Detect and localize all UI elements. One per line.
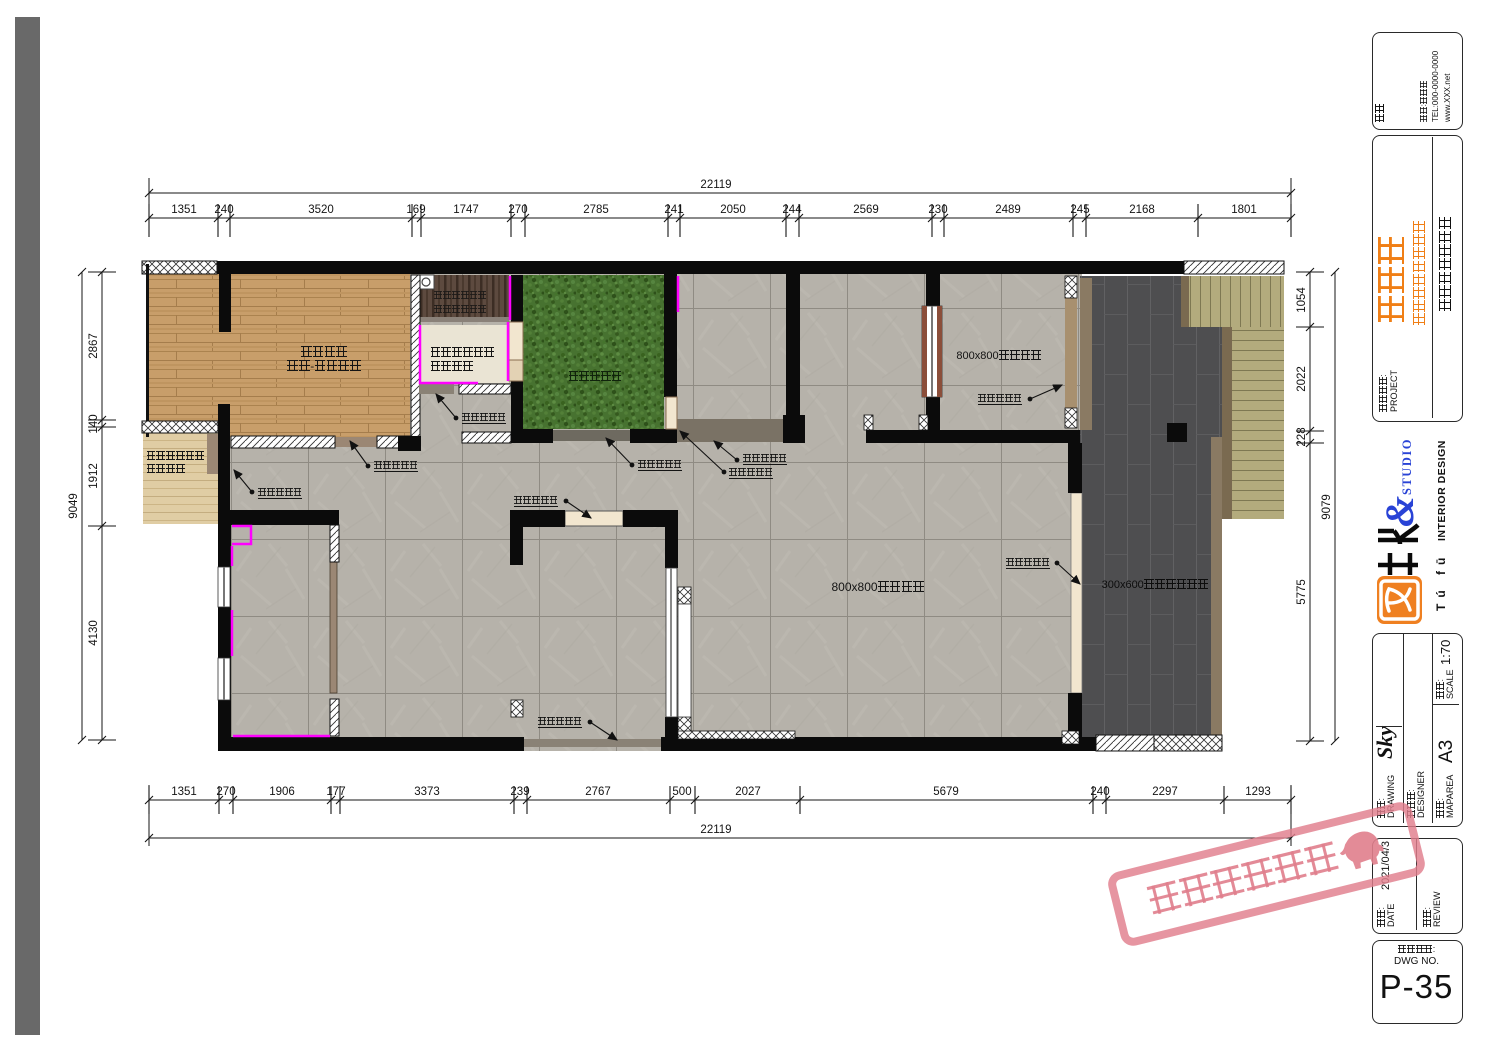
- svg-text:2168: 2168: [1129, 204, 1155, 216]
- svg-text:140: 140: [88, 414, 100, 433]
- svg-text:2785: 2785: [583, 204, 609, 216]
- svg-text:1906: 1906: [269, 786, 295, 798]
- svg-text:245: 245: [1070, 204, 1089, 216]
- svg-text:3373: 3373: [414, 786, 440, 798]
- svg-text:230: 230: [928, 204, 947, 216]
- svg-text:1054: 1054: [1296, 287, 1308, 313]
- svg-text:9079: 9079: [1321, 494, 1333, 520]
- svg-text:169: 169: [406, 204, 425, 216]
- svg-text:244: 244: [782, 204, 802, 216]
- svg-text:241: 241: [664, 204, 683, 216]
- svg-text:1912: 1912: [88, 463, 100, 489]
- svg-text:270: 270: [508, 204, 527, 216]
- svg-text:2489: 2489: [995, 204, 1021, 216]
- svg-text:177: 177: [326, 786, 345, 798]
- svg-text:5679: 5679: [933, 786, 959, 798]
- svg-text:500: 500: [672, 786, 691, 798]
- svg-text:1747: 1747: [453, 204, 479, 216]
- svg-text:1293: 1293: [1245, 786, 1271, 798]
- svg-text:2297: 2297: [1152, 786, 1178, 798]
- svg-text:2022: 2022: [1296, 366, 1308, 392]
- svg-text:5775: 5775: [1296, 579, 1308, 605]
- svg-text:228: 228: [1296, 427, 1308, 446]
- svg-text:3520: 3520: [308, 204, 334, 216]
- svg-text:2569: 2569: [853, 204, 879, 216]
- svg-text:2050: 2050: [720, 204, 746, 216]
- svg-text:4130: 4130: [88, 620, 100, 646]
- svg-text:9049: 9049: [68, 493, 80, 519]
- svg-text:2767: 2767: [585, 786, 611, 798]
- svg-text:270: 270: [216, 786, 235, 798]
- svg-text:2027: 2027: [735, 786, 761, 798]
- svg-text:239: 239: [510, 786, 529, 798]
- svg-text:22119: 22119: [700, 824, 731, 836]
- svg-text:240: 240: [1090, 786, 1109, 798]
- svg-text:2867: 2867: [88, 333, 100, 359]
- svg-text:1801: 1801: [1231, 204, 1257, 216]
- svg-text:240: 240: [214, 204, 233, 216]
- svg-text:22119: 22119: [700, 179, 731, 191]
- svg-text:1351: 1351: [171, 204, 197, 216]
- svg-text:1351: 1351: [171, 786, 197, 798]
